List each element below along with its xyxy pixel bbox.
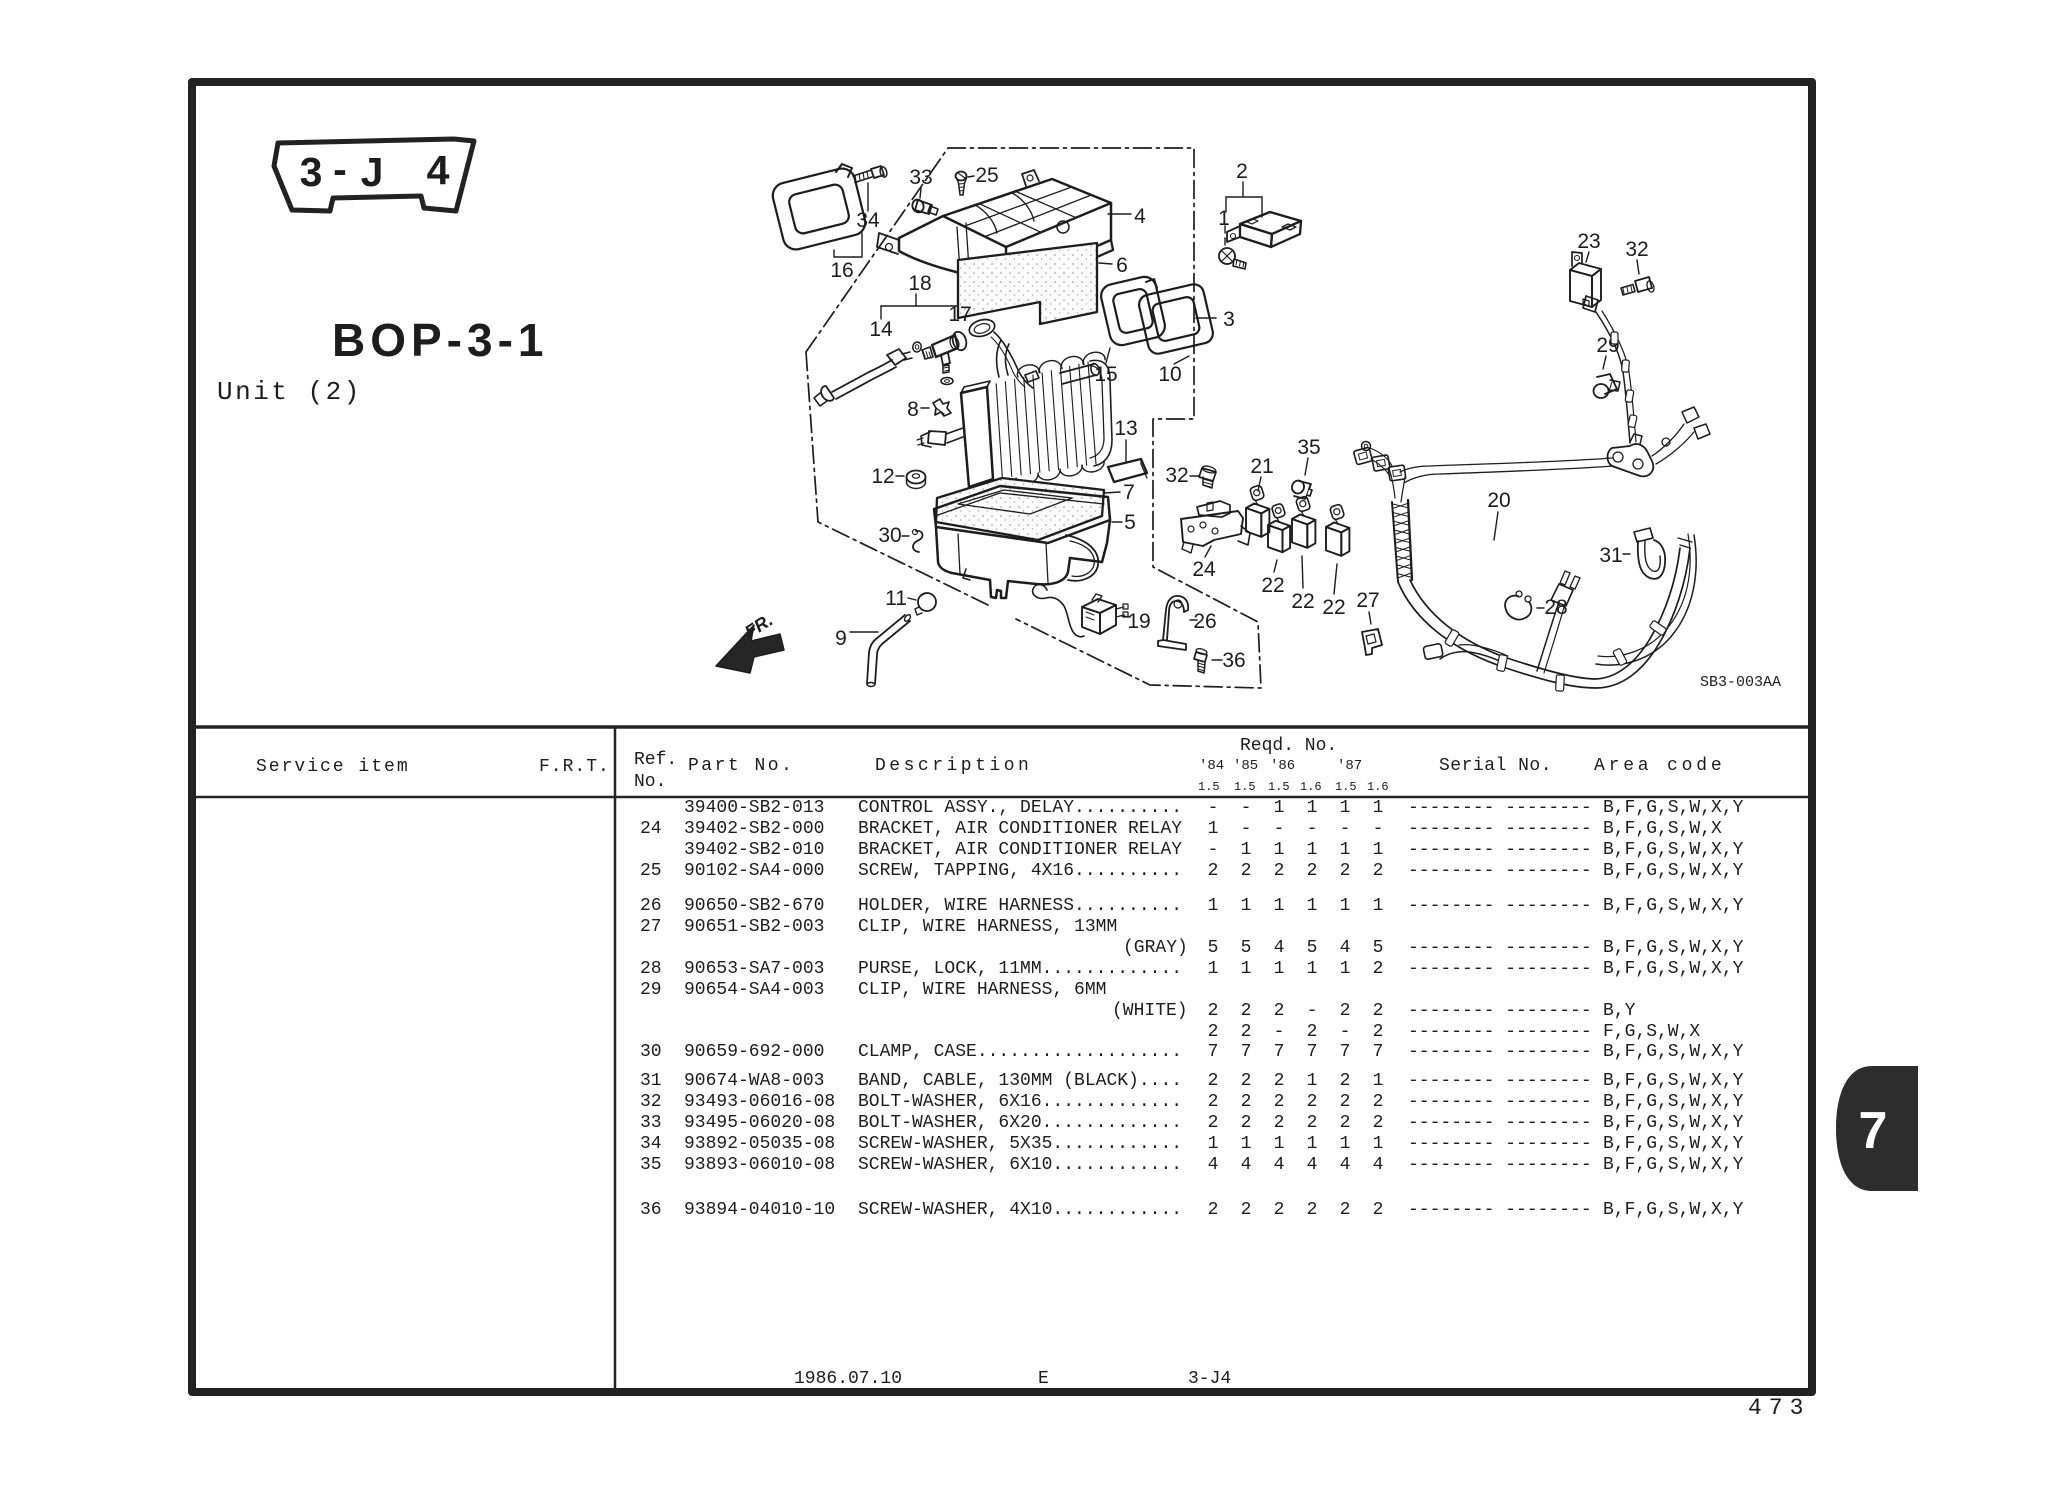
svg-text:Area code: Area code [1594, 756, 1725, 776]
svg-text:19: 19 [1127, 610, 1150, 633]
svg-text:3293493-06016-08BOLT-WASHER, 6: 3293493-06016-08BOLT-WASHER, 6X16.......… [640, 1092, 1744, 1112]
svg-text:23: 23 [1577, 230, 1600, 253]
svg-text:7: 7 [1859, 1102, 1888, 1160]
svg-text:3: 3 [300, 149, 323, 195]
svg-text:4: 4 [1134, 205, 1146, 228]
svg-text:2890653-SA7-003PURSE, LOCK, 11: 2890653-SA7-003PURSE, LOCK, 11MM........… [640, 959, 1744, 979]
svg-text:BOP-3-1: BOP-3-1 [332, 314, 548, 366]
svg-text:Service item: Service item [256, 757, 410, 777]
svg-text:2790651-SB2-003CLIP, WIRE HARN: 2790651-SB2-003CLIP, WIRE HARNESS, 13MM [640, 917, 1117, 937]
svg-text:17: 17 [948, 303, 971, 326]
svg-text:Reqd. No.: Reqd. No. [1240, 736, 1337, 756]
svg-text:2590102-SA4-000SCREW, TAPPING,: 2590102-SA4-000SCREW, TAPPING, 4X16.....… [640, 861, 1744, 881]
svg-text:4: 4 [427, 147, 450, 193]
svg-text:2690650-SB2-670HOLDER, WIRE HA: 2690650-SB2-670HOLDER, WIRE HARNESS.....… [640, 896, 1744, 916]
svg-text:Serial No.: Serial No. [1439, 756, 1552, 776]
svg-text:14: 14 [869, 318, 893, 341]
svg-text:24: 24 [1192, 558, 1216, 581]
svg-text:3493892-05035-08SCREW-WASHER,: 3493892-05035-08SCREW-WASHER, 5X35......… [640, 1134, 1744, 1154]
svg-text:-: - [333, 146, 347, 192]
svg-text:'85: '85 [1233, 758, 1258, 774]
svg-text:Unit (2): Unit (2) [217, 377, 362, 407]
svg-text:16: 16 [830, 259, 853, 282]
svg-text:26: 26 [1193, 610, 1216, 633]
svg-text:22-2-2-------- --------F,G,S,W: 22-2-2-------- --------F,G,S,W,X [1208, 1022, 1701, 1042]
svg-text:33: 33 [909, 166, 932, 189]
svg-text:3693894-04010-10SCREW-WASHER,: 3693894-04010-10SCREW-WASHER, 4X10......… [640, 1200, 1744, 1220]
svg-text:(WHITE)222-22-------- --------: (WHITE)222-22-------- --------B,Y [1112, 1001, 1636, 1021]
svg-text:22: 22 [1291, 590, 1314, 613]
svg-text:22: 22 [1261, 574, 1284, 597]
svg-text:1.5: 1.5 [1198, 780, 1220, 794]
svg-text:36: 36 [1222, 649, 1245, 672]
svg-text:21: 21 [1250, 455, 1273, 478]
svg-text:34: 34 [856, 209, 880, 232]
svg-text:27: 27 [1356, 589, 1379, 612]
svg-text:1.5: 1.5 [1335, 780, 1357, 794]
svg-text:F.R.T.: F.R.T. [539, 757, 610, 777]
svg-text:Part No.: Part No. [688, 756, 794, 776]
svg-text:30: 30 [878, 524, 901, 547]
svg-text:39400-SB2-013CONTROL ASSY., DE: 39400-SB2-013CONTROL ASSY., DELAY.......… [684, 798, 1744, 818]
svg-text:5: 5 [1124, 511, 1136, 534]
svg-text:E: E [1038, 1369, 1049, 1389]
svg-text:3593893-06010-08SCREW-WASHER,: 3593893-06010-08SCREW-WASHER, 6X10......… [640, 1155, 1744, 1175]
svg-text:1986.07.10: 1986.07.10 [794, 1369, 902, 1389]
svg-text:25: 25 [975, 164, 998, 187]
svg-text:2990654-SA4-003CLIP, WIRE HARN: 2990654-SA4-003CLIP, WIRE HARNESS, 6MM [640, 980, 1106, 1000]
svg-text:2439402-SB2-000BRACKET, AIR CO: 2439402-SB2-000BRACKET, AIR CONDITIONER … [640, 819, 1722, 839]
svg-text:'86: '86 [1270, 758, 1295, 774]
svg-text:39402-SB2-010BRACKET, AIR COND: 39402-SB2-010BRACKET, AIR CONDITIONER RE… [684, 840, 1744, 860]
svg-text:9: 9 [835, 627, 847, 650]
svg-text:(GRAY)554545-------- --------B: (GRAY)554545-------- --------B,F,G,S,W,X… [1123, 938, 1744, 958]
svg-text:7: 7 [1123, 481, 1135, 504]
svg-text:1: 1 [1218, 207, 1230, 230]
svg-text:'84: '84 [1199, 758, 1224, 774]
svg-text:473: 473 [1748, 1395, 1810, 1421]
svg-text:SB3-003AA: SB3-003AA [1700, 674, 1781, 691]
svg-text:No.: No. [634, 772, 666, 792]
svg-text:6: 6 [1116, 254, 1128, 277]
svg-text:3: 3 [1223, 308, 1235, 331]
svg-text:Description: Description [875, 756, 1032, 776]
svg-text:20: 20 [1487, 489, 1510, 512]
svg-text:18: 18 [908, 272, 931, 295]
svg-text:3393495-06020-08BOLT-WASHER, 6: 3393495-06020-08BOLT-WASHER, 6X20.......… [640, 1113, 1744, 1133]
svg-text:12: 12 [871, 465, 894, 488]
svg-text:32: 32 [1625, 238, 1648, 261]
svg-text:28: 28 [1544, 596, 1567, 619]
svg-text:3190674-WA8-003BAND, CABLE, 13: 3190674-WA8-003BAND, CABLE, 130MM (BLACK… [640, 1071, 1744, 1091]
svg-text:1.6: 1.6 [1300, 780, 1322, 794]
svg-text:10: 10 [1158, 363, 1181, 386]
svg-text:J: J [361, 149, 384, 195]
svg-text:22: 22 [1322, 596, 1345, 619]
svg-text:32: 32 [1165, 464, 1188, 487]
svg-text:13: 13 [1114, 417, 1137, 440]
svg-text:Ref.: Ref. [634, 750, 677, 770]
svg-text:1.5: 1.5 [1234, 780, 1256, 794]
svg-text:8: 8 [907, 398, 919, 421]
svg-text:31: 31 [1599, 544, 1622, 567]
svg-text:35: 35 [1297, 436, 1320, 459]
svg-text:2: 2 [1236, 160, 1248, 183]
svg-text:11: 11 [885, 587, 907, 610]
svg-text:1.5: 1.5 [1268, 780, 1290, 794]
svg-text:1.6: 1.6 [1367, 780, 1389, 794]
svg-text:'87: '87 [1337, 758, 1362, 774]
svg-text:3-J4: 3-J4 [1188, 1369, 1231, 1389]
svg-text:3090659-692-000CLAMP, CASE....: 3090659-692-000CLAMP, CASE..............… [640, 1042, 1744, 1062]
